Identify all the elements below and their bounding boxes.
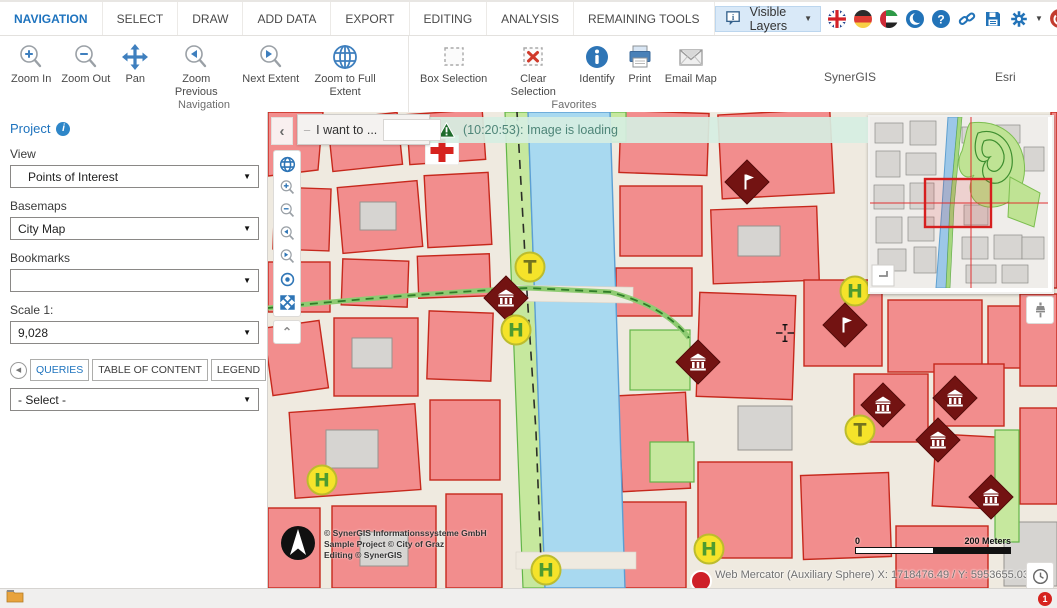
chevron-down-icon: ▼ bbox=[243, 276, 251, 285]
printer-icon bbox=[625, 42, 655, 72]
marker-museum[interactable] bbox=[932, 375, 977, 420]
logo-globe-icon bbox=[690, 570, 712, 588]
tool-identify[interactable]: Identify bbox=[574, 40, 619, 88]
pan-arrows-icon bbox=[120, 42, 150, 72]
menu-tab-remaining-tools[interactable]: REMAINING TOOLS bbox=[574, 2, 715, 35]
project-info-icon[interactable]: i bbox=[56, 122, 70, 136]
tab-queries[interactable]: QUERIES bbox=[30, 359, 89, 381]
tool-zoom-full-extent[interactable]: Zoom to Full Extent bbox=[304, 40, 386, 100]
marker-museum[interactable] bbox=[675, 339, 720, 384]
scale-max-label: 200 Meters bbox=[964, 536, 1011, 546]
group-label-favorites: Favorites bbox=[409, 99, 739, 111]
marker-flag[interactable] bbox=[724, 159, 769, 204]
settings-gear-icon[interactable] bbox=[1009, 8, 1029, 29]
settings-chevron-down-icon[interactable]: ▼ bbox=[1035, 14, 1043, 23]
notification-bar: (10:20:53): Image is loading bbox=[430, 117, 868, 143]
zoom-out-icon bbox=[71, 42, 101, 72]
power-icon[interactable] bbox=[1049, 8, 1057, 29]
visible-layers-label: Visible Layers bbox=[750, 5, 798, 33]
marker-museum[interactable] bbox=[968, 474, 1013, 519]
flag-uae-icon[interactable] bbox=[879, 8, 899, 29]
overview-map[interactable] bbox=[868, 115, 1054, 294]
tool-next-extent[interactable]: Next Extent bbox=[237, 40, 304, 88]
center-target-icon[interactable] bbox=[275, 268, 299, 291]
overview-pin-button[interactable] bbox=[1026, 296, 1054, 324]
marker-hospital[interactable]: H bbox=[531, 555, 562, 586]
query-select[interactable]: - Select - ▼ bbox=[10, 388, 259, 411]
notification-text: (10:20:53): Image is loading bbox=[463, 123, 618, 137]
next-extent-icon bbox=[256, 42, 286, 72]
chevron-down-icon: ▼ bbox=[243, 172, 251, 181]
brand-synergis: SynerGIS bbox=[824, 70, 876, 84]
zoom-in-icon[interactable] bbox=[275, 176, 299, 199]
menu-tab-analysis[interactable]: ANALYSIS bbox=[487, 2, 574, 35]
identify-icon bbox=[582, 42, 612, 72]
basemaps-select-value: City Map bbox=[18, 222, 243, 236]
view-select[interactable]: Points of Interest ▼ bbox=[10, 165, 259, 188]
query-select-value: - Select - bbox=[18, 393, 243, 407]
chevron-down-icon: ▼ bbox=[804, 14, 812, 23]
coordinates-readout: Web Mercator (Auxiliary Sphere) X: 17184… bbox=[715, 569, 1029, 581]
menu-tab-select[interactable]: SELECT bbox=[103, 2, 179, 35]
svg-text:?: ? bbox=[937, 12, 944, 26]
sidebar-panel: Project i View Points of Interest ▼ Base… bbox=[0, 112, 268, 588]
tabs-scroll-left-button[interactable]: ◀ bbox=[10, 362, 27, 379]
menu-tab-export[interactable]: EXPORT bbox=[331, 2, 409, 35]
group-label-navigation: Navigation bbox=[0, 99, 408, 111]
tool-box-selection[interactable]: Box Selection bbox=[415, 40, 492, 88]
clear-selection-icon bbox=[518, 42, 548, 72]
bookmarks-select[interactable]: ▼ bbox=[10, 269, 259, 292]
scale-select-value: 9,028 bbox=[18, 326, 243, 340]
menu-tab-editing[interactable]: EDITING bbox=[410, 2, 488, 35]
map-copyright: © SynerGIS Informationssysteme GmbH Samp… bbox=[324, 528, 487, 561]
status-bar bbox=[0, 588, 1057, 608]
scale-min-label: 0 bbox=[855, 536, 860, 546]
tool-pan[interactable]: Pan bbox=[115, 40, 155, 88]
clock-icon bbox=[1032, 568, 1049, 585]
view-select-value: Points of Interest bbox=[18, 170, 243, 184]
menu-bar: NAVIGATION SELECT DRAW ADD DATA EXPORT E… bbox=[0, 0, 1057, 36]
zoom-out-icon[interactable] bbox=[275, 199, 299, 222]
map-toolbar-collapse-button[interactable]: ⌃ bbox=[273, 320, 301, 344]
expand-arrows-icon[interactable] bbox=[275, 291, 299, 314]
tab-legend[interactable]: LEGEND bbox=[211, 359, 266, 381]
scale-label: Scale 1: bbox=[10, 303, 259, 317]
scale-bar: 0 200 Meters bbox=[855, 536, 1011, 554]
basemaps-select[interactable]: City Map ▼ bbox=[10, 217, 259, 240]
marker-museum[interactable] bbox=[483, 275, 528, 320]
speech-bubble-info-icon: i bbox=[724, 8, 743, 29]
minimize-icon[interactable]: _ bbox=[304, 120, 310, 132]
scale-select[interactable]: 9,028 ▼ bbox=[10, 321, 259, 344]
ribbon-toolbar: Zoom In Zoom Out Pan Zoom Previous Next … bbox=[0, 36, 1057, 113]
basemaps-label: Basemaps bbox=[10, 199, 259, 213]
map-canvas[interactable]: THHHHHT ‹ _ I want to ... (10:20:53): Im… bbox=[268, 112, 1057, 588]
marker-hospital[interactable]: H bbox=[694, 534, 725, 565]
globe-icon bbox=[330, 42, 360, 72]
chevron-down-icon: ▼ bbox=[243, 395, 251, 404]
ribbon-group-favorites: Box Selection Clear Selection Identify P… bbox=[409, 36, 739, 112]
i-want-to-label: I want to ... bbox=[316, 123, 377, 137]
i-want-to-widget: _ I want to ... bbox=[297, 114, 430, 145]
sidebar-collapse-button[interactable]: ‹ bbox=[271, 117, 293, 145]
brand-esri: Esri bbox=[995, 70, 1016, 84]
view-label: View bbox=[10, 147, 259, 161]
i-want-to-input[interactable] bbox=[383, 119, 441, 141]
full-extent-globe-icon[interactable] bbox=[275, 153, 299, 176]
menu-tabs: NAVIGATION SELECT DRAW ADD DATA EXPORT E… bbox=[0, 2, 715, 35]
flag-uk-icon[interactable] bbox=[827, 8, 847, 29]
marker-hospital[interactable]: H bbox=[501, 315, 532, 346]
menu-tab-navigation[interactable]: NAVIGATION bbox=[0, 2, 103, 35]
zoom-in-icon bbox=[16, 42, 46, 72]
north-arrow bbox=[280, 525, 316, 566]
notification-count-badge[interactable]: 1 bbox=[1038, 592, 1052, 606]
envelope-icon bbox=[676, 42, 706, 72]
moon-icon[interactable] bbox=[905, 8, 925, 29]
zoom-previous-icon bbox=[181, 42, 211, 72]
box-selection-icon bbox=[439, 42, 469, 72]
tool-print[interactable]: Print bbox=[620, 40, 660, 88]
chevron-down-icon: ▼ bbox=[243, 328, 251, 337]
tool-zoom-previous[interactable]: Zoom Previous bbox=[155, 40, 237, 100]
marker-tram[interactable]: T bbox=[515, 252, 546, 283]
help-icon[interactable]: ? bbox=[931, 8, 951, 29]
zoom-next-icon[interactable] bbox=[275, 245, 299, 268]
project-label: Project bbox=[10, 121, 50, 136]
link-icon[interactable] bbox=[957, 8, 977, 29]
history-clock-button[interactable] bbox=[1026, 562, 1054, 588]
crosshair-cursor bbox=[776, 324, 794, 342]
marker-flag[interactable] bbox=[822, 302, 867, 347]
tab-table-of-content[interactable]: TABLE OF CONTENT bbox=[92, 359, 208, 381]
flag-germany-icon[interactable] bbox=[853, 8, 873, 29]
menu-tab-draw[interactable]: DRAW bbox=[178, 2, 243, 35]
pushpin-icon bbox=[1034, 302, 1047, 318]
visible-layers-button[interactable]: i Visible Layers ▼ bbox=[715, 6, 821, 32]
chevron-down-icon: ▼ bbox=[243, 224, 251, 233]
tool-zoom-out[interactable]: Zoom Out bbox=[56, 40, 115, 88]
marker-museum[interactable] bbox=[915, 417, 960, 462]
marker-tram[interactable]: T bbox=[845, 415, 876, 446]
marker-hospital[interactable]: H bbox=[307, 465, 338, 496]
tool-zoom-in[interactable]: Zoom In bbox=[6, 40, 56, 88]
menu-tab-add-data[interactable]: ADD DATA bbox=[243, 2, 331, 35]
folder-icon[interactable] bbox=[6, 589, 24, 608]
tool-clear-selection[interactable]: Clear Selection bbox=[492, 40, 574, 100]
ribbon-group-navigation: Zoom In Zoom Out Pan Zoom Previous Next … bbox=[0, 36, 409, 112]
tool-email-map[interactable]: Email Map bbox=[660, 40, 722, 88]
zoom-previous-icon[interactable] bbox=[275, 222, 299, 245]
map-toolbar bbox=[273, 150, 301, 317]
bookmarks-label: Bookmarks bbox=[10, 251, 259, 265]
save-icon[interactable] bbox=[983, 8, 1003, 29]
